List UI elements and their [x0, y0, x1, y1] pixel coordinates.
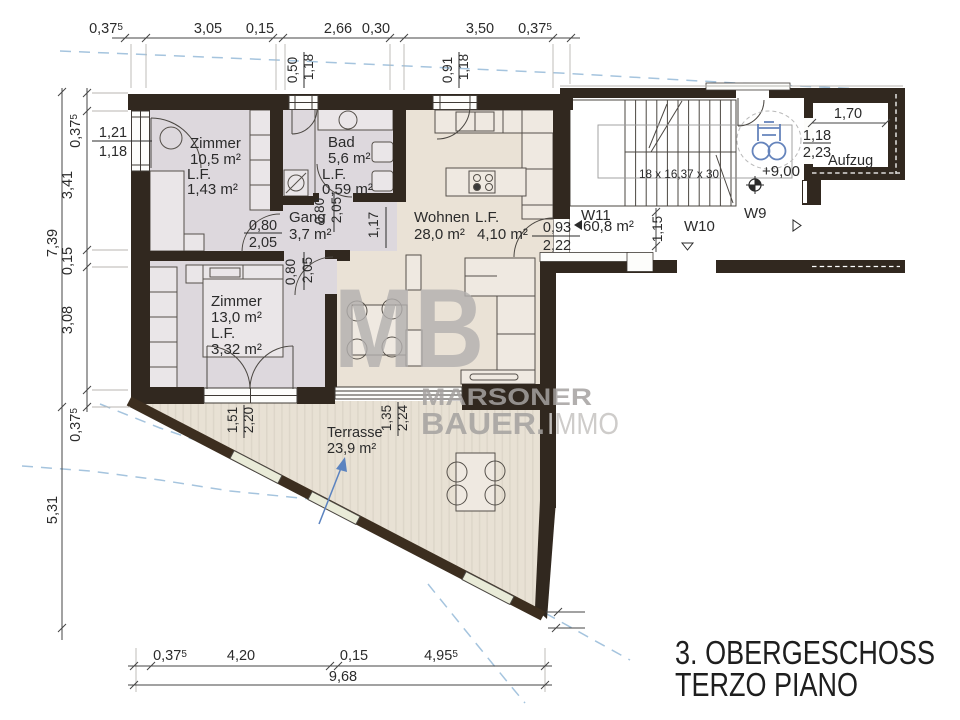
svg-text:1,17: 1,17 [366, 212, 381, 238]
svg-text:0,15: 0,15 [60, 247, 76, 275]
svg-text:2,22: 2,22 [543, 238, 571, 254]
svg-text:1,18: 1,18 [99, 144, 127, 160]
svg-text:W10: W10 [684, 218, 715, 235]
svg-text:2,66: 2,66 [324, 21, 352, 37]
svg-text:2,05: 2,05 [249, 235, 277, 251]
svg-text:1,70: 1,70 [834, 106, 862, 122]
svg-text:BAUER.: BAUER. [421, 406, 545, 441]
svg-text:28,0 m²: 28,0 m² [414, 226, 465, 243]
svg-text:23,9 m²: 23,9 m² [327, 441, 376, 457]
svg-text:2,20: 2,20 [241, 407, 256, 433]
svg-text:2,24: 2,24 [395, 404, 410, 431]
svg-text:1,18: 1,18 [456, 54, 471, 80]
svg-text:TERZO PIANO: TERZO PIANO [675, 666, 858, 703]
svg-text:MB: MB [334, 266, 484, 391]
svg-text:2,23: 2,23 [803, 145, 831, 161]
svg-text:13,0 m²: 13,0 m² [211, 309, 262, 326]
svg-text:1,21: 1,21 [99, 125, 127, 141]
svg-text:3,08: 3,08 [60, 306, 76, 334]
svg-text:W9: W9 [744, 205, 767, 222]
svg-text:L.F.: L.F. [211, 325, 235, 342]
svg-text:1,18: 1,18 [803, 128, 831, 144]
svg-text:1,18: 1,18 [301, 54, 316, 80]
svg-text:3,05: 3,05 [194, 21, 222, 37]
svg-text:18 x 16,37 x 30: 18 x 16,37 x 30 [639, 167, 719, 181]
svg-text:0,80: 0,80 [283, 259, 298, 285]
svg-text:4,10 m²: 4,10 m² [477, 226, 528, 243]
svg-text:2,05: 2,05 [300, 257, 315, 283]
svg-text:0,59 m²: 0,59 m² [322, 181, 373, 198]
svg-text:4,20: 4,20 [227, 648, 255, 664]
svg-text:0,91: 0,91 [440, 57, 455, 83]
svg-text:9,68: 9,68 [329, 669, 357, 685]
svg-text:3,7 m²: 3,7 m² [289, 226, 332, 243]
svg-text:3,32 m²: 3,32 m² [211, 341, 262, 358]
svg-text:0,15: 0,15 [340, 648, 368, 664]
svg-text:+9,00: +9,00 [762, 163, 800, 180]
svg-text:1,43 m²: 1,43 m² [187, 181, 238, 198]
svg-text:1,51: 1,51 [225, 407, 240, 433]
svg-text:60,8 m²: 60,8 m² [583, 218, 634, 235]
svg-text:5,6 m²: 5,6 m² [328, 150, 371, 167]
svg-text:7,39: 7,39 [45, 229, 61, 257]
svg-text:IMMO: IMMO [547, 406, 619, 441]
svg-text:0,80: 0,80 [249, 218, 277, 234]
svg-text:Bad: Bad [328, 134, 355, 151]
svg-text:3,50: 3,50 [466, 21, 494, 37]
svg-text:0,30: 0,30 [362, 21, 390, 37]
svg-text:Gang: Gang [289, 209, 326, 226]
svg-text:1,15: 1,15 [650, 216, 665, 242]
svg-text:2,05: 2,05 [329, 197, 344, 223]
svg-text:Zimmer: Zimmer [211, 293, 262, 310]
svg-text:Terrasse: Terrasse [327, 425, 383, 441]
svg-text:Aufzug: Aufzug [828, 153, 873, 169]
svg-text:0,93: 0,93 [543, 220, 571, 236]
svg-text:0,50: 0,50 [285, 57, 300, 83]
svg-text:0,15: 0,15 [246, 21, 274, 37]
svg-text:3,41: 3,41 [60, 171, 76, 199]
svg-text:Wohnen: Wohnen [414, 209, 470, 226]
svg-text:5,31: 5,31 [45, 496, 61, 524]
svg-text:L.F.: L.F. [475, 209, 499, 226]
svg-text:Zimmer: Zimmer [190, 135, 241, 152]
